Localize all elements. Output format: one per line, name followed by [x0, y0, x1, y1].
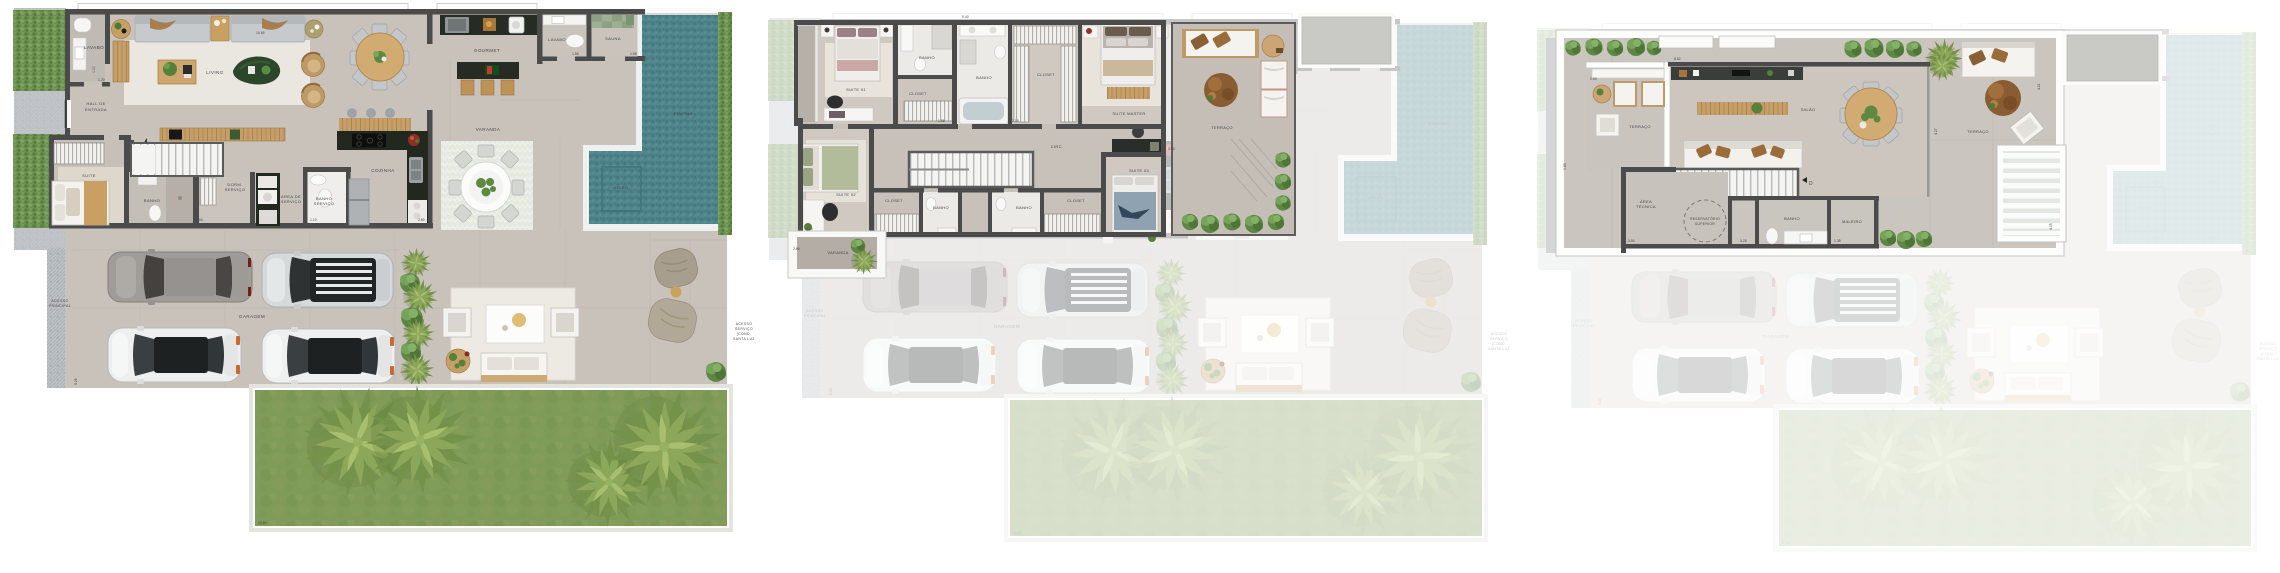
svg-text:5.40: 5.40 — [962, 15, 969, 19]
svg-text:1.55: 1.55 — [572, 52, 579, 56]
svg-text:COZINHA: COZINHA — [371, 168, 395, 173]
svg-text:4.21: 4.21 — [2037, 83, 2041, 90]
svg-text:BANHO: BANHO — [144, 198, 160, 203]
svg-text:3.50: 3.50 — [1628, 239, 1635, 243]
svg-text:CLOSET: CLOSET — [885, 198, 903, 203]
svg-text:5.26: 5.26 — [74, 378, 78, 385]
svg-text:SERVIÇO: SERVIÇO — [281, 199, 302, 204]
svg-text:SERVIÇO: SERVIÇO — [735, 327, 753, 331]
svg-text:3.25: 3.25 — [1740, 239, 1747, 243]
svg-text:1.00: 1.00 — [92, 66, 96, 73]
svg-text:2.00: 2.00 — [196, 218, 203, 222]
svg-text:2.80: 2.80 — [418, 218, 425, 222]
svg-text:SANTA LUZ: SANTA LUZ — [733, 337, 755, 341]
svg-text:BANHO: BANHO — [933, 205, 949, 210]
svg-text:10.65: 10.65 — [256, 31, 265, 35]
svg-text:1.10: 1.10 — [310, 218, 317, 222]
svg-text:VARANDA: VARANDA — [827, 250, 848, 255]
svg-text:4.00: 4.00 — [806, 227, 813, 231]
svg-text:BANHO: BANHO — [976, 75, 992, 80]
svg-text:4.10: 4.10 — [1048, 232, 1055, 236]
svg-text:2.60: 2.60 — [793, 247, 800, 251]
svg-text:ACESSO: ACESSO — [736, 322, 753, 326]
svg-text:SERVIÇO: SERVIÇO — [314, 201, 335, 206]
svg-text:HALL DE: HALL DE — [86, 101, 105, 106]
svg-text:ENTRADA: ENTRADA — [85, 107, 107, 112]
svg-text:BANHO: BANHO — [1016, 205, 1032, 210]
svg-text:2.10: 2.10 — [900, 232, 907, 236]
svg-text:BANHO: BANHO — [919, 55, 935, 60]
svg-text:TÉCNICA: TÉCNICA — [1636, 204, 1656, 209]
svg-text:2.50: 2.50 — [1590, 77, 1597, 81]
svg-text:TERRAÇO: TERRAÇO — [1629, 124, 1651, 129]
svg-text:LIVING: LIVING — [206, 70, 223, 75]
svg-text:TERRAÇO: TERRAÇO — [1211, 125, 1233, 130]
svg-text:1.86: 1.86 — [938, 119, 945, 123]
svg-text:SUPERIOR: SUPERIOR — [1695, 222, 1715, 226]
svg-text:(COND.: (COND. — [737, 332, 751, 336]
svg-text:0.85: 0.85 — [1563, 163, 1567, 170]
svg-text:CLOSET: CLOSET — [1037, 72, 1055, 77]
svg-text:PISCINA: PISCINA — [674, 111, 693, 116]
svg-text:4.27: 4.27 — [1934, 128, 1938, 135]
svg-text:SUITE 02: SUITE 02 — [836, 192, 856, 197]
svg-text:GARAGEM: GARAGEM — [239, 314, 265, 319]
svg-text:SALÃO: SALÃO — [1801, 107, 1816, 112]
svg-text:SUITE: SUITE — [82, 173, 96, 178]
svg-text:3.15: 3.15 — [1168, 147, 1175, 151]
svg-text:MALEIRO: MALEIRO — [1842, 219, 1862, 224]
svg-text:2.15: 2.15 — [1012, 119, 1019, 123]
svg-text:CIRC.: CIRC. — [1051, 144, 1063, 149]
svg-text:SUITE 03: SUITE 03 — [1129, 168, 1149, 173]
svg-text:1.35: 1.35 — [1834, 239, 1841, 243]
svg-text:SERVIÇO: SERVIÇO — [225, 187, 246, 192]
svg-text:CLOSET: CLOSET — [909, 91, 927, 96]
svg-text:HIDRO: HIDRO — [614, 185, 629, 190]
svg-text:LAVABO: LAVABO — [84, 45, 104, 50]
svg-text:SAUNA: SAUNA — [605, 36, 621, 41]
svg-text:GOURMET: GOURMET — [474, 48, 500, 53]
svg-text:2.55: 2.55 — [845, 20, 852, 24]
svg-text:D: D — [1809, 181, 1813, 187]
svg-text:LAVABO: LAVABO — [548, 37, 566, 42]
svg-text:4.05: 4.05 — [2049, 223, 2053, 230]
svg-text:ACESSO: ACESSO — [51, 299, 68, 303]
svg-text:CLOSET: CLOSET — [1067, 198, 1085, 203]
svg-text:SUITE 01: SUITE 01 — [846, 87, 866, 92]
svg-text:8.52: 8.52 — [1674, 57, 1681, 61]
svg-text:PRINCIPAL: PRINCIPAL — [49, 304, 71, 308]
svg-text:TERRAÇO: TERRAÇO — [1967, 129, 1989, 134]
svg-text:1.20: 1.20 — [98, 78, 105, 82]
svg-text:BANHO: BANHO — [1784, 216, 1800, 221]
svg-text:1.59: 1.59 — [630, 52, 637, 56]
svg-text:13.60: 13.60 — [258, 521, 267, 525]
svg-text:RESERVATÓRIO: RESERVATÓRIO — [1690, 216, 1720, 221]
svg-text:VARANDA: VARANDA — [476, 127, 501, 132]
svg-text:2.10: 2.10 — [990, 232, 997, 236]
svg-text:4.43: 4.43 — [1090, 20, 1097, 24]
svg-text:SUITE MASTER: SUITE MASTER — [1112, 111, 1145, 116]
